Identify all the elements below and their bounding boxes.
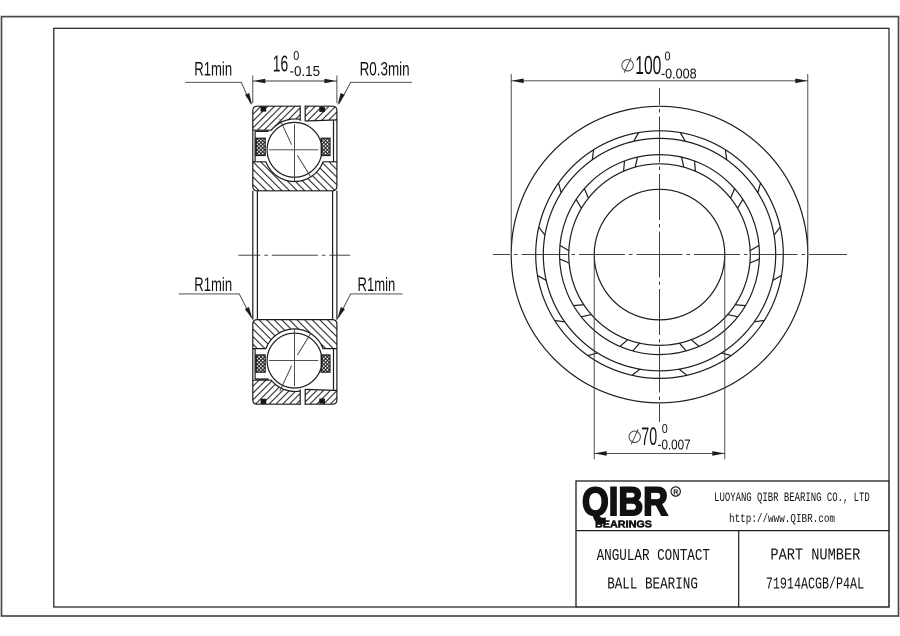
svg-text:ANGULAR CONTACT: ANGULAR CONTACT [597,546,711,565]
svg-text:-0.15: -0.15 [290,64,321,80]
svg-text:R: R [673,490,678,497]
svg-text:100: 100 [635,50,661,80]
svg-text:0: 0 [662,421,668,436]
svg-text:71914ACGB/P4AL: 71914ACGB/P4AL [766,575,864,594]
svg-text:R1min: R1min [194,60,232,81]
svg-text:LUOYANG QIBR BEARING CO., LTD: LUOYANG QIBR BEARING CO., LTD [714,491,870,505]
svg-text:-0.007: -0.007 [658,437,691,453]
svg-text:http://www.QIBR.com: http://www.QIBR.com [729,512,835,526]
svg-text:QIBR: QIBR [582,480,668,524]
svg-text:0: 0 [665,49,671,64]
svg-text:PART NUMBER: PART NUMBER [770,545,860,564]
svg-text:R0.3min: R0.3min [360,60,410,81]
svg-text:16: 16 [273,51,288,77]
svg-text:70: 70 [641,423,657,451]
svg-text:R1min: R1min [358,275,396,296]
svg-text:-0.008: -0.008 [661,66,697,82]
svg-text:R1min: R1min [194,275,232,296]
svg-text:BEARINGS: BEARINGS [595,520,652,531]
svg-text:BALL BEARING: BALL BEARING [607,574,698,593]
svg-text:0: 0 [293,48,299,63]
